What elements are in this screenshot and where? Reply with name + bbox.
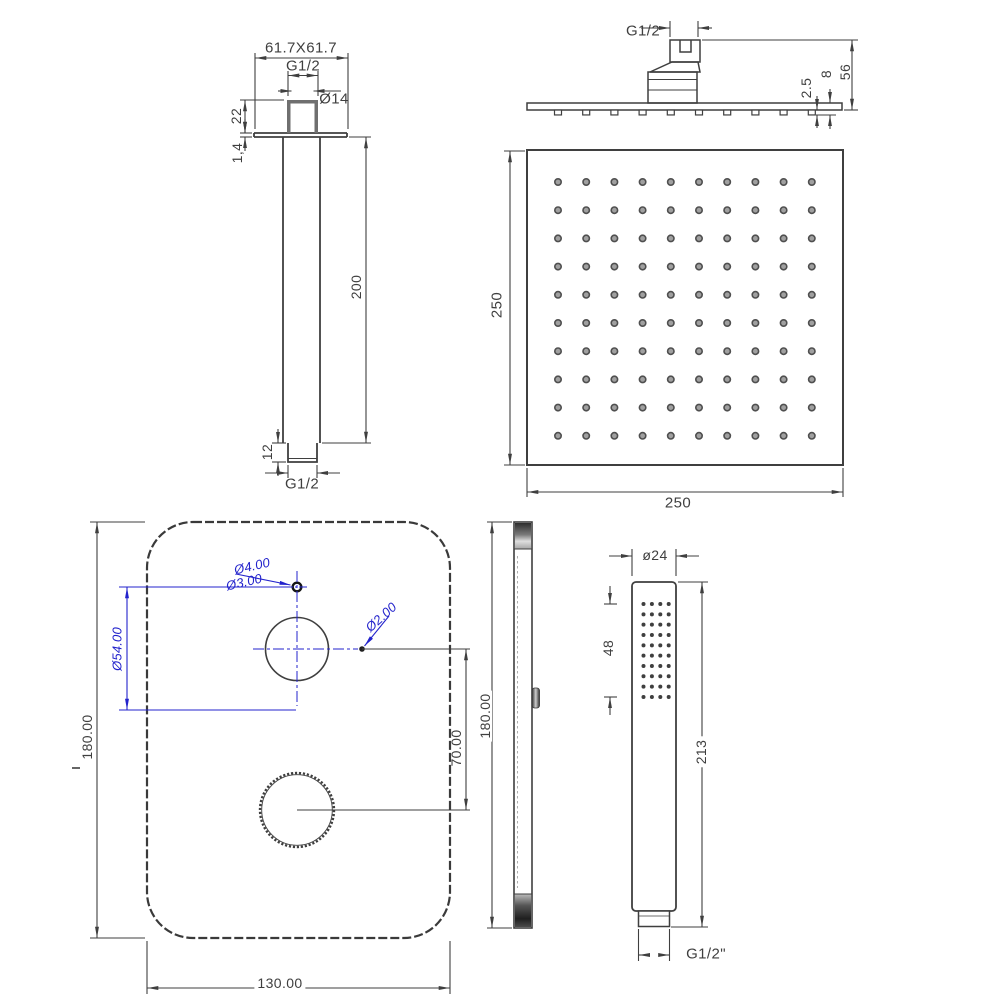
valve-width-label: 130.00 — [254, 976, 305, 990]
arm-bore-label: Ø14 — [319, 92, 349, 107]
valve-side-outline — [514, 522, 532, 928]
ceiling-arm-front-view — [240, 53, 371, 478]
valve-side-knob — [532, 688, 540, 708]
shower-head-side-view — [527, 21, 858, 129]
valve-height-label: 180.00 — [80, 714, 94, 759]
head-thread-label: G1/2 — [626, 24, 660, 39]
hand-shower-length-label: 213 — [694, 737, 708, 768]
hand-shower-spray-length-label: 48 — [601, 637, 615, 659]
head-face-height-label: 250 — [490, 292, 505, 318]
technical-drawing-sheet: 61.7X61.7 G1/2 Ø14 22 1,4 200 12 G1/2 G1… — [0, 0, 1005, 1005]
valve-side-top-cap — [515, 523, 531, 549]
hand-shower-body — [632, 582, 676, 911]
head-side-nozzles — [555, 110, 816, 115]
hand-shower-thread-stub — [639, 911, 670, 927]
arm-flange-thickness-label: 1,4 — [230, 143, 244, 164]
valve-plate-front-view — [72, 522, 470, 994]
drawing-canvas — [0, 0, 1005, 1005]
valve-side-height-label: 180.00 — [478, 690, 492, 741]
head-total-height-label: 56 — [838, 64, 852, 80]
arm-length-label: 200 — [349, 275, 363, 300]
hand-shower-diameter-label: ø24 — [642, 548, 667, 562]
arm-bottom-thread-label: G1/2 — [285, 477, 319, 492]
valve-knob-spacing-label: 70.00 — [449, 729, 463, 766]
head-nozzle-protrusion-label: 2.5 — [799, 78, 813, 99]
head-side-outline — [527, 40, 842, 110]
arm-tip-length-label: 12 — [260, 444, 274, 460]
valve-plate-side-view — [487, 522, 540, 928]
head-face-outline — [527, 150, 843, 465]
ceiling-arm-dimensions — [240, 53, 371, 478]
shower-head-face-view — [504, 150, 843, 497]
arm-flange-size-label: 61.7X61.7 — [265, 41, 337, 56]
valve-side-bottom-cap — [515, 894, 531, 927]
valve-knob-circle-label: Ø54.00 — [111, 627, 124, 671]
hand-shower-thread-label: G1/2" — [686, 947, 726, 962]
arm-stub-height-label: 22 — [229, 108, 243, 124]
head-face-width-label: 250 — [665, 496, 691, 511]
head-edge-thickness-label: 8 — [819, 70, 833, 78]
ceiling-arm-outline — [254, 100, 347, 462]
arm-top-thread-label: G1/2 — [286, 59, 320, 74]
